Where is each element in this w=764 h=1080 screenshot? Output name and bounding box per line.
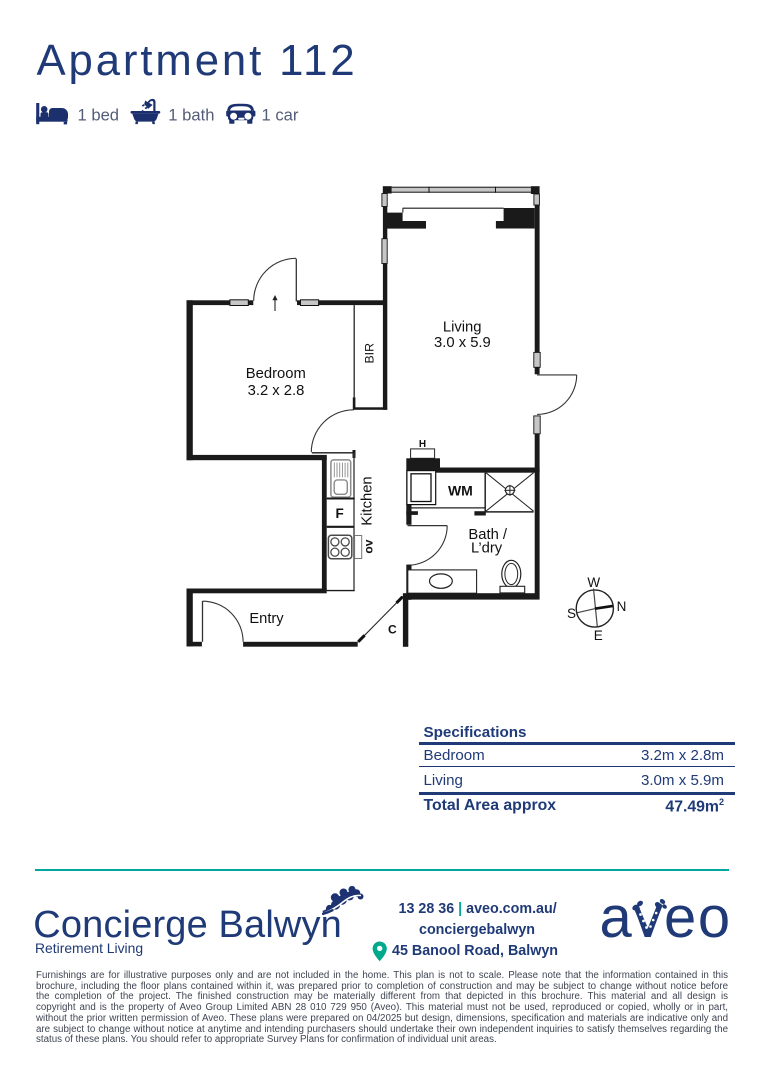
svg-text:3.0 x 5.9: 3.0 x 5.9 bbox=[434, 335, 491, 351]
svg-text:C: C bbox=[388, 622, 397, 636]
svg-text:Living: Living bbox=[443, 320, 482, 336]
svg-text:Bedroom: Bedroom bbox=[246, 366, 306, 382]
svg-text:N: N bbox=[617, 599, 627, 614]
svg-text:L’dry: L’dry bbox=[471, 541, 503, 557]
svg-text:ov: ov bbox=[362, 539, 376, 553]
svg-text:E: E bbox=[594, 628, 603, 643]
svg-text:3.2 x 2.8: 3.2 x 2.8 bbox=[248, 383, 305, 399]
svg-text:Kitchen: Kitchen bbox=[360, 476, 376, 525]
svg-text:WM: WM bbox=[448, 483, 473, 499]
svg-text:H: H bbox=[419, 439, 426, 450]
svg-text:W: W bbox=[587, 575, 600, 590]
svg-text:Entry: Entry bbox=[249, 611, 284, 627]
svg-text:S: S bbox=[567, 606, 576, 621]
svg-text:BIR: BIR bbox=[362, 343, 376, 364]
svg-text:F: F bbox=[335, 506, 343, 521]
